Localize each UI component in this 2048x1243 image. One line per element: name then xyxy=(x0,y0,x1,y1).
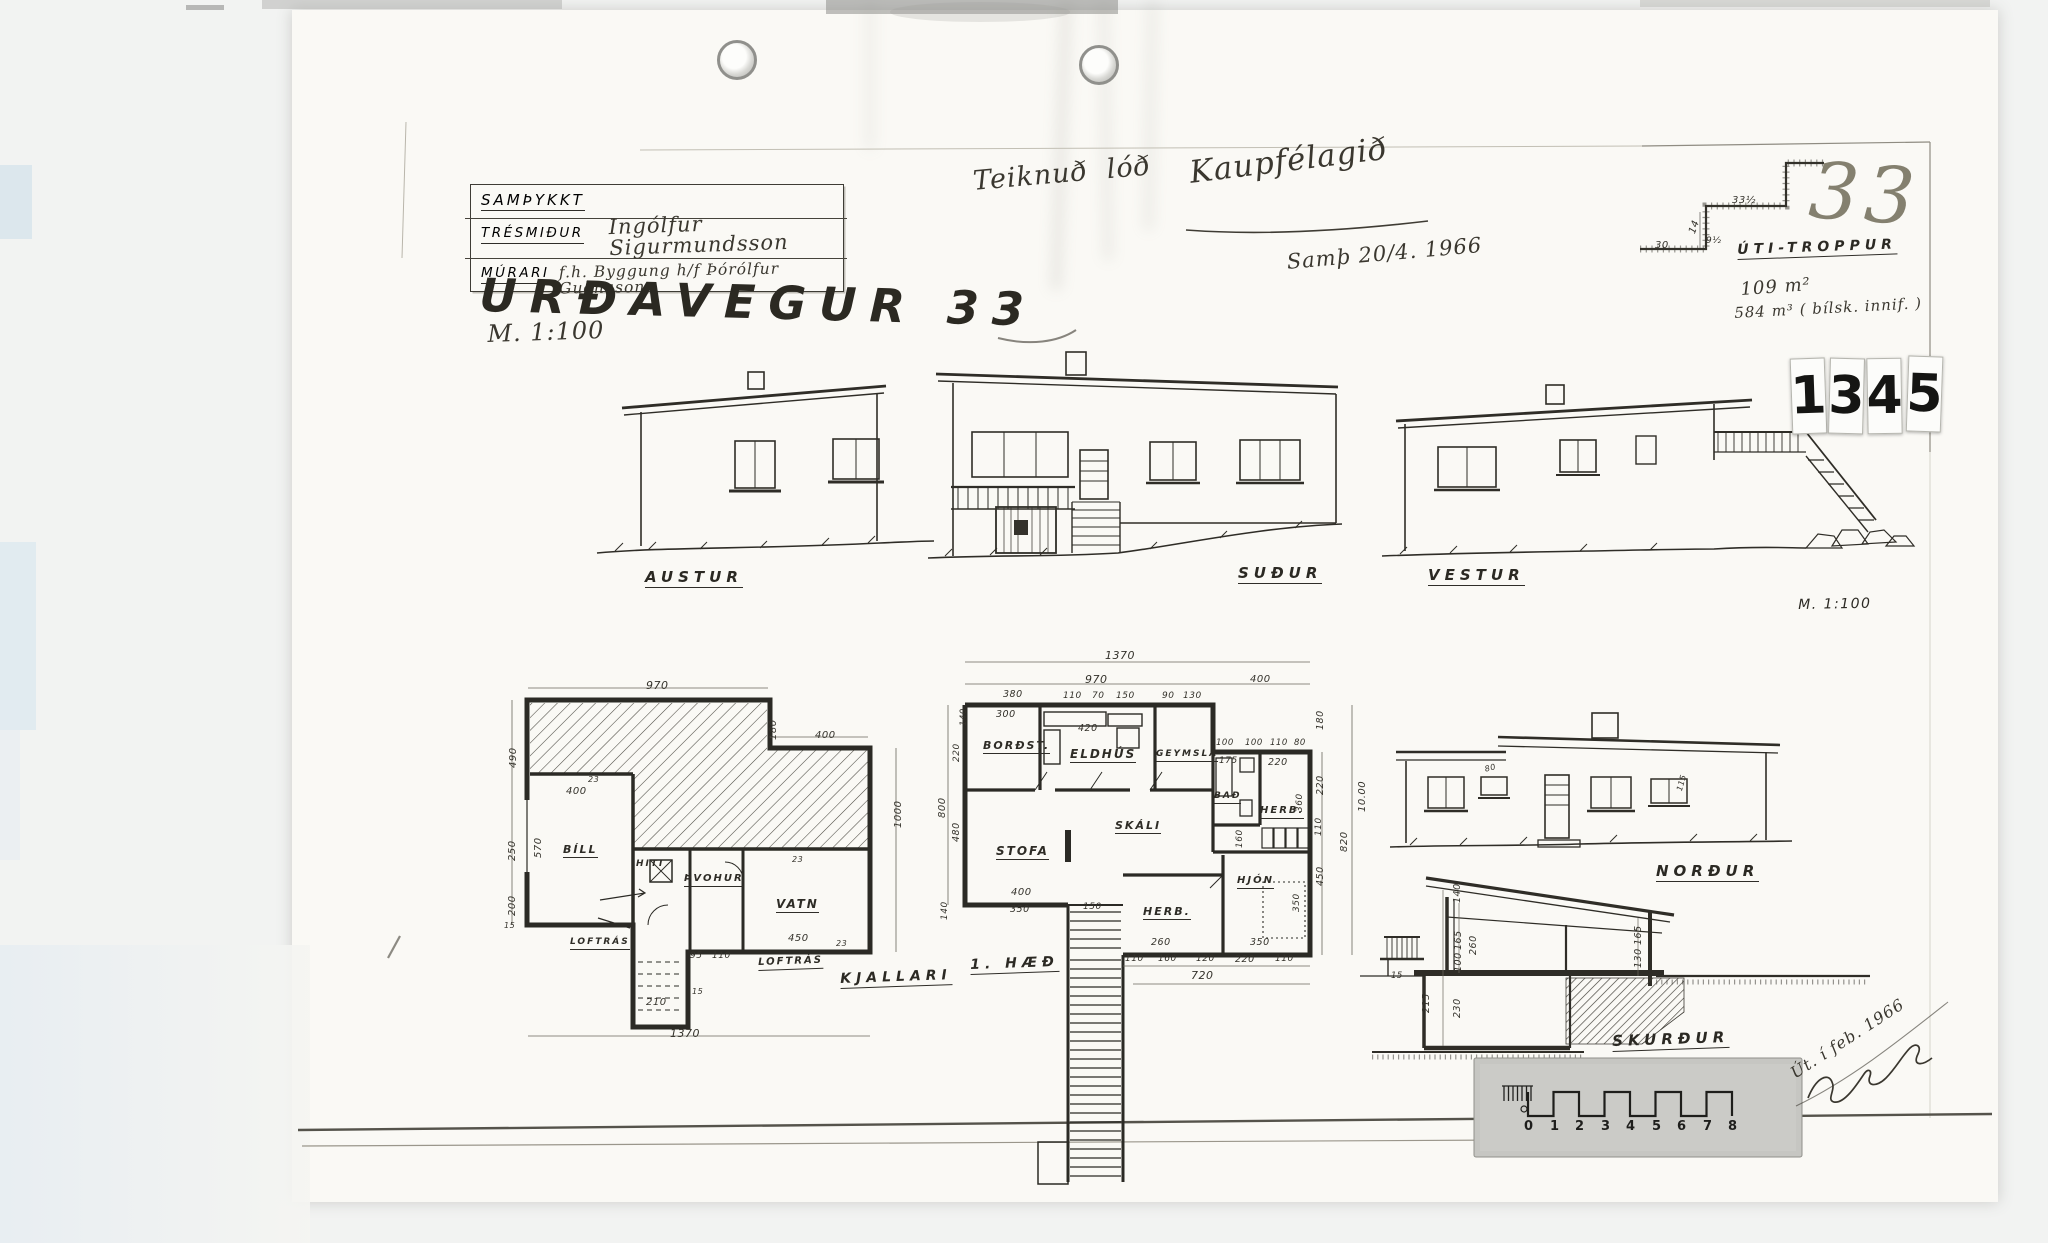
dim-label: 450 xyxy=(788,934,809,944)
dim-label: 110 xyxy=(1063,692,1082,701)
dim-label: 15 xyxy=(504,922,515,930)
room-label-vatn: VATN xyxy=(776,898,819,913)
dim-label: 720 xyxy=(1191,970,1214,981)
dim-label: 130 xyxy=(1634,948,1644,968)
dim-label: 970 xyxy=(646,680,669,691)
dim-label: 110 xyxy=(1270,739,1288,748)
dim-label: 215 xyxy=(1422,993,1432,1013)
dim-label: 90 xyxy=(1162,692,1174,701)
kjallari-plan-drawing xyxy=(512,688,896,1036)
plan-label-first-floor: 1. HÆÐ xyxy=(970,955,1059,975)
room-label-hiti: HITI xyxy=(636,860,664,869)
sheet-scale-note: M. 1:100 xyxy=(487,318,605,346)
dim-label: 400 xyxy=(815,731,836,741)
dim-label: 70 xyxy=(1092,692,1104,701)
dim-label: 350 xyxy=(1250,938,1270,948)
dim-label: 110 xyxy=(712,952,731,961)
elevation-label-vestur: VESTUR xyxy=(1428,568,1525,586)
sudur-elevation-drawing xyxy=(928,352,1342,558)
scalebar-number: 2 xyxy=(1575,1120,1584,1133)
dim-label: 220 xyxy=(1268,758,1288,768)
dim-label: 110 xyxy=(1275,955,1294,964)
dim-label: 350 xyxy=(1293,893,1302,912)
room-label-stofa: STOFA xyxy=(996,845,1049,860)
stair-detail-dim: 9½ xyxy=(1706,237,1721,246)
scalebar-number: 0 xyxy=(1524,1120,1533,1133)
room-label-loftras-2: LOFTRÁS xyxy=(758,956,823,971)
scalebar-number: 4 xyxy=(1626,1120,1635,1133)
dim-label: 80 xyxy=(1294,739,1306,748)
austur-elevation-drawing xyxy=(597,372,934,553)
room-label-herb-bottom: HERB. xyxy=(1143,906,1191,920)
elevation-label-sudur: SUÐUR xyxy=(1238,566,1322,584)
room-label-bad: BAÐ xyxy=(1214,792,1241,804)
dim-label: 175 xyxy=(1219,757,1238,766)
dim-label: 160 xyxy=(1158,955,1177,964)
dim-label: 100 xyxy=(1216,739,1234,748)
stamp-digit: 1 xyxy=(1790,357,1828,434)
scalebar-number: 1 xyxy=(1550,1120,1559,1133)
dim-label: 100 xyxy=(1245,739,1263,748)
carpenter-label: TRÉSMIÐUR xyxy=(481,227,584,244)
scalebar-number: 6 xyxy=(1677,1120,1686,1133)
carpenter-signature: Ingólfur Sigurmundsson xyxy=(608,209,843,259)
dim-label: 130 xyxy=(1183,692,1202,701)
dim-label: 250 xyxy=(508,840,518,861)
uti-troppur-stair-detail xyxy=(1640,163,1824,249)
stamp-digit: 4 xyxy=(1866,358,1902,435)
dim-label: 165 xyxy=(1634,925,1644,945)
dim-label: 180 xyxy=(769,719,779,740)
dim-label: 165 xyxy=(1454,930,1464,950)
dim-label: 820 xyxy=(1340,831,1350,852)
dim-label: 490 xyxy=(509,747,519,768)
dim-label: 420 xyxy=(1078,724,1098,734)
elevation-label-nordur: NORÐUR xyxy=(1656,864,1759,882)
dim-label: 160 xyxy=(1236,829,1245,848)
dim-label: 15 xyxy=(692,988,703,996)
dim-label: 400 xyxy=(566,787,587,797)
dim-label: 220 xyxy=(1235,955,1255,965)
dim-label: 350 xyxy=(1010,905,1030,915)
dim-label: 380 xyxy=(1003,690,1023,700)
dim-label: 140 xyxy=(960,708,969,726)
handwritten-strokes xyxy=(388,221,1948,1106)
dim-label: 23 xyxy=(836,940,847,948)
dim-label: 260 xyxy=(1151,938,1171,948)
scan-smudges xyxy=(186,0,1990,22)
stair-detail-dim: 33½ xyxy=(1732,196,1756,206)
dim-label: 140 xyxy=(1453,883,1463,903)
stamp-digit: 3 xyxy=(1828,358,1865,435)
dim-label: 1370 xyxy=(1105,650,1135,661)
scale-bar xyxy=(1474,1058,1802,1157)
dim-label: 220 xyxy=(1316,775,1326,795)
room-label-skali: SKÁLI xyxy=(1115,820,1161,834)
dim-label: 1000 xyxy=(894,801,904,828)
scanned-architectural-drawing: SAMÞYKKT TRÉSMIÐUR Ingólfur Sigurmundsso… xyxy=(0,0,2048,1243)
approved-label: SAMÞYKKT xyxy=(481,193,585,211)
dim-label: 450 xyxy=(1316,866,1326,886)
dim-label: 23 xyxy=(588,776,599,784)
dim-label: 10.00 xyxy=(1358,781,1368,812)
stamp-digit: 5 xyxy=(1906,355,1944,432)
dim-label: 95 xyxy=(690,952,702,961)
scalebar-number: 5 xyxy=(1652,1120,1661,1133)
stair-detail-dim: 30 xyxy=(1655,241,1669,251)
photo-number-stamp: 1 3 4 5 xyxy=(1791,358,1942,434)
dim-label: 300 xyxy=(996,710,1016,720)
dim-label: 110 xyxy=(1125,955,1144,964)
dim-label: 120 xyxy=(1196,955,1215,964)
scalebar-number: 3 xyxy=(1601,1120,1610,1133)
dim-label: 15 xyxy=(1391,972,1403,981)
dim-label: 1370 xyxy=(670,1028,700,1039)
dim-label: 400 xyxy=(1250,675,1271,685)
elevation-label-austur: AUSTUR xyxy=(645,570,743,588)
dim-label: 480 xyxy=(952,822,962,842)
room-label-loftras-1: LOFTRÁS xyxy=(570,938,630,950)
dim-label: 220 xyxy=(953,743,962,762)
dim-label: 970 xyxy=(1085,674,1108,685)
dim-label: 200 xyxy=(508,895,518,916)
dim-label: 140 xyxy=(941,901,950,920)
skurdur-section-drawing xyxy=(1360,878,1870,1057)
scalebar-number: 7 xyxy=(1703,1120,1712,1133)
dim-label: 110 xyxy=(1315,817,1324,836)
dim-label: 180 xyxy=(1316,710,1326,730)
dim-label: 150 xyxy=(1083,903,1102,912)
dim-label: 570 xyxy=(534,837,544,858)
dim-label: 150 xyxy=(1116,692,1135,701)
room-label-bill: BÍLL xyxy=(563,844,598,858)
dim-label: 360 xyxy=(1296,793,1305,812)
room-label-eldhus: ELDHÚS xyxy=(1070,748,1136,763)
dim-label: 210 xyxy=(646,998,667,1008)
scalebar-number: 8 xyxy=(1728,1120,1737,1133)
dim-label: 230 xyxy=(1453,998,1463,1018)
room-label-geymsla: GEYMSLA xyxy=(1156,750,1218,762)
nordur-elevation-drawing xyxy=(1390,713,1792,847)
dim-label: 400 xyxy=(1011,888,1032,898)
dim-label: 800 xyxy=(938,797,948,818)
room-label-hjon: HJÓN xyxy=(1237,876,1274,889)
room-label-bordst: BORÐST. xyxy=(983,740,1050,754)
dim-label: 23 xyxy=(792,856,803,864)
dim-label: 260 xyxy=(1469,935,1479,955)
note-floor-area: 109 m² xyxy=(1740,276,1811,299)
room-label-thvohur: ÞVOHUR xyxy=(684,874,744,887)
dim-label: 100 xyxy=(1454,952,1464,972)
sheet-number-pencil: 33 xyxy=(1807,152,1923,238)
scale-note-right: M. 1:100 xyxy=(1798,597,1872,612)
